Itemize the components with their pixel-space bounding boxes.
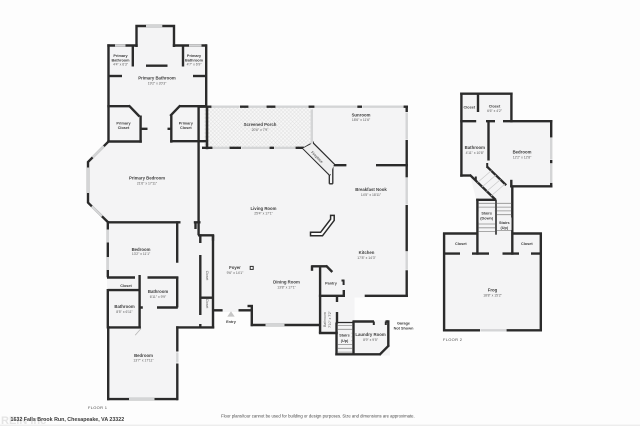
svg-text:Living Room: Living Room [250,206,276,211]
svg-text:Bedroom: Bedroom [134,353,153,358]
svg-text:Pantry: Pantry [325,281,338,285]
svg-text:Stairs: Stairs [339,334,350,338]
svg-text:Closet: Closet [205,271,209,281]
svg-text:8'5" x 6'11": 8'5" x 6'11" [116,310,133,314]
svg-text:12'2" x 12'8": 12'2" x 12'8" [513,155,532,159]
svg-text:Closet: Closet [489,104,501,108]
svg-text:Kitchen: Kitchen [359,250,375,255]
svg-text:Bathroom: Bathroom [465,145,485,150]
svg-text:1632 Falls Brook Run, Chesapea: 1632 Falls Brook Run, Chesapeake, VA 233… [11,417,125,423]
svg-text:13'8" x 17'1": 13'8" x 17'1" [277,285,296,289]
svg-text:14'5" x 18'11": 14'5" x 18'11" [361,193,382,197]
svg-text:Floor plans/tour cannot be use: Floor plans/tour cannot be used for buil… [221,414,415,419]
svg-text:9'6" x 14'1": 9'6" x 14'1" [227,271,245,275]
svg-text:13'2" x 11'1": 13'2" x 11'1" [132,252,151,256]
svg-text:Closet: Closet [205,299,209,309]
svg-text:13'7" x 17'11": 13'7" x 17'11" [133,359,154,363]
svg-text:Bathroom: Bathroom [148,289,168,294]
svg-text:Entry: Entry [226,320,237,324]
svg-text:Primary Bedroom: Primary Bedroom [129,176,165,181]
svg-text:(Up): (Up) [501,226,509,230]
svg-text:Breakfast Nook: Breakfast Nook [355,187,387,192]
svg-text:FLOOR 1: FLOOR 1 [88,405,108,410]
svg-text:PrimaryCloset: PrimaryCloset [179,121,194,130]
svg-text:Closet: Closet [463,105,475,109]
svg-text:21'6" x 17'11": 21'6" x 17'11" [137,182,158,186]
svg-text:PrimaryBathroom: PrimaryBathroom [112,54,131,62]
svg-text:Stairs: Stairs [481,212,492,216]
svg-text:4'11" x 10'8": 4'11" x 10'8" [466,151,485,155]
svg-text:Closet: Closet [455,242,467,246]
svg-text:25'4" x 17'1": 25'4" x 17'1" [254,211,273,215]
svg-text:Bathroom: Bathroom [323,312,327,327]
svg-text:(Down): (Down) [480,217,494,221]
svg-text:Garage: Garage [397,322,410,326]
svg-text:4'7" x 6'9": 4'7" x 6'9" [187,63,203,67]
svg-text:17'8" x 14'3": 17'8" x 14'3" [357,256,376,260]
svg-text:FLOOR 2: FLOOR 2 [443,337,463,342]
svg-text:Stairs: Stairs [499,221,510,225]
svg-text:Not Shown: Not Shown [394,327,415,331]
svg-text:7'10" x 7'2": 7'10" x 7'2" [328,310,332,328]
svg-text:Bedroom: Bedroom [132,247,151,252]
svg-text:Sunroom: Sunroom [352,113,371,118]
svg-text:6'6" x 4'2": 6'6" x 4'2" [487,109,503,113]
svg-text:6'11" x 9'9": 6'11" x 9'9" [150,295,167,299]
svg-text:Closet: Closet [521,242,533,246]
svg-text:PrimaryCloset: PrimaryCloset [116,121,131,130]
svg-text:20'6" x 7'9": 20'6" x 7'9" [252,128,270,132]
svg-text:Frog: Frog [488,288,498,293]
svg-text:Screened Porch: Screened Porch [244,122,277,127]
svg-text:Foyer: Foyer [229,265,241,270]
svg-text:4'4" x 6'3": 4'4" x 6'3" [113,63,129,67]
svg-text:Primary Bathroom: Primary Bathroom [138,76,176,81]
svg-text:Laundry Room: Laundry Room [355,332,385,337]
svg-text:Bedroom: Bedroom [513,150,532,155]
svg-text:Bathroom: Bathroom [114,304,134,309]
svg-text:18'8" x 15'2": 18'8" x 15'2" [483,294,502,298]
svg-text:8'9" x 9'5": 8'9" x 9'5" [363,338,379,342]
svg-text:Closet: Closet [120,284,132,288]
svg-text:Dining Room: Dining Room [273,280,300,285]
svg-text:(Up): (Up) [341,339,349,343]
svg-text:19'2" x 20'3": 19'2" x 20'3" [148,81,167,85]
svg-text:18'6" x 11'6": 18'6" x 11'6" [352,118,371,122]
svg-text:PrimaryBathroom: PrimaryBathroom [185,54,204,62]
